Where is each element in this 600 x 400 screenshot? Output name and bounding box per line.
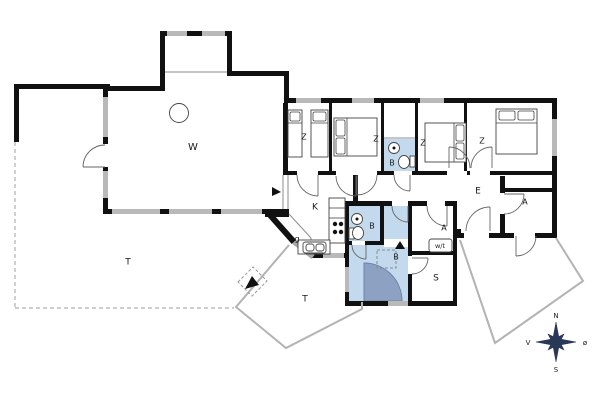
bed-pillow [456, 143, 464, 159]
door-arc [394, 175, 410, 191]
wall [14, 84, 19, 142]
compass-label-west: V [526, 339, 531, 347]
room-label-bedroom-1: Z [301, 133, 307, 142]
room-label-kitchen: K [312, 203, 319, 213]
room-label-terrace-west: T [124, 258, 131, 268]
room-label-washer-dryer: w/t [435, 242, 446, 250]
terrace-edge [460, 238, 583, 343]
door-opening [392, 201, 408, 206]
room-label-bedroom-4: Z [479, 137, 485, 146]
room-label-bedroom-3: Z [420, 139, 426, 148]
window [345, 267, 349, 292]
door-arc [357, 175, 377, 195]
round-fixture [170, 104, 189, 123]
door-opening [500, 193, 505, 214]
door-arc [83, 145, 105, 167]
window [420, 98, 444, 103]
wall [14, 84, 110, 89]
room-label-annex: A [522, 198, 528, 207]
room-label-storage-small: A [441, 224, 447, 233]
furniture-rect [329, 198, 345, 243]
compass-center-dot [554, 340, 558, 344]
wall [500, 188, 557, 192]
bed-pillow [336, 120, 345, 136]
wall [329, 102, 332, 172]
compass-label-east: ø [583, 339, 588, 347]
door-opening [427, 201, 445, 206]
window [352, 98, 374, 103]
window [296, 98, 321, 103]
wall [103, 86, 165, 91]
bed-pillow [499, 111, 515, 120]
floor-plan-page: WTTZZZZBKgBBEAw/tSA NSVø [0, 0, 600, 400]
door-opening [103, 144, 108, 167]
window [388, 301, 408, 306]
toilet [353, 227, 364, 240]
hob-dot [393, 147, 396, 150]
hob-dot [356, 218, 359, 221]
entrance-arrow [272, 187, 281, 196]
hob-dot [339, 222, 343, 226]
room-label-terrace-south: T [301, 295, 308, 305]
hob-dot [333, 230, 337, 234]
room-label-living-room: W [188, 142, 198, 153]
door-arc [471, 147, 492, 168]
bed-pillow [336, 138, 345, 154]
window [169, 209, 212, 214]
door-opening [470, 171, 490, 175]
window [112, 209, 160, 214]
room-label-bedroom-2: Z [373, 135, 379, 144]
door-opening [356, 171, 377, 175]
floor-plan-svg: WTTZZZZBKgBBEAw/tSA NSVø [0, 0, 600, 400]
wall [284, 171, 557, 175]
wall [380, 206, 384, 241]
room-label-entry-closet: g [294, 235, 299, 244]
wall [381, 102, 384, 172]
window [552, 119, 557, 156]
bed-pillow [518, 111, 534, 120]
wall [227, 71, 289, 76]
door-arc [297, 175, 318, 196]
room-label-bath-small: B [369, 222, 375, 231]
room-label-sauna-room: S [433, 274, 439, 284]
door-arc [412, 258, 428, 274]
door-opening [394, 171, 412, 175]
wall [345, 201, 392, 206]
door-opening [447, 171, 467, 175]
room-label-bath-big: B [393, 253, 399, 262]
door-opening [336, 171, 356, 175]
hob-dot [339, 230, 343, 234]
wall [283, 103, 288, 175]
bed-pillow [313, 112, 326, 121]
window [221, 209, 262, 214]
wall [160, 31, 165, 91]
furniture-rect [410, 156, 415, 167]
door-opening [352, 241, 365, 245]
partition-line [289, 214, 311, 238]
door-opening [408, 256, 412, 274]
room-label-hallway: E [475, 187, 481, 197]
step [384, 239, 408, 247]
door-opening [464, 233, 489, 238]
hob-dot [333, 222, 337, 226]
fixture [316, 244, 324, 251]
door-arc [504, 194, 524, 214]
window [103, 171, 108, 198]
wall [415, 102, 418, 172]
wall-diagonal [270, 215, 294, 242]
walls [14, 31, 557, 306]
room-label-bath-north: B [389, 159, 395, 168]
window [167, 31, 187, 36]
door-arc [466, 207, 490, 231]
door-arc [516, 236, 536, 256]
fixture [306, 244, 314, 251]
terrace-edge [236, 245, 362, 348]
compass-rose: NSVø [526, 312, 588, 374]
window [202, 31, 225, 36]
toilet [399, 156, 410, 169]
door-opening [514, 233, 535, 238]
door-opening [297, 171, 318, 175]
compass-label-south: S [554, 366, 559, 374]
window [103, 97, 108, 137]
wet-room-floor [384, 206, 408, 241]
bed-pillow [456, 125, 464, 141]
bed-pillow [290, 112, 300, 121]
wall [227, 31, 232, 76]
compass-label-north: N [553, 312, 558, 320]
